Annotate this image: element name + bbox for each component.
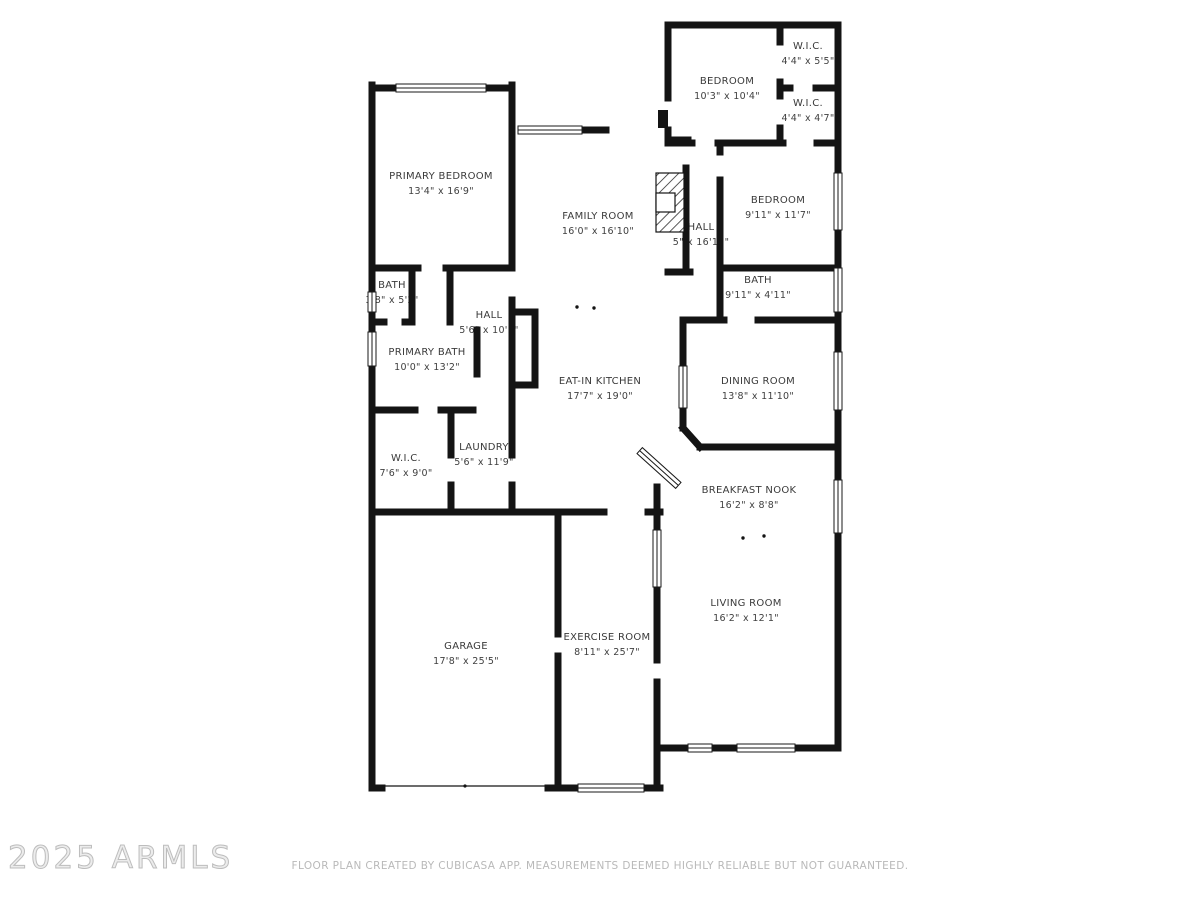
room-dims: 13'8" x 11'10" [721,390,795,404]
room-label-hall-right: HALL 5" x 16'11" [673,221,730,249]
room-label-primary-bedroom: PRIMARY BEDROOM 13'4" x 16'9" [389,170,493,198]
armls-watermark: 2025 ARMLS [8,840,233,876]
room-name: GARAGE [433,640,499,655]
front-door-icon [658,110,668,128]
room-dims: 16'0" x 16'10" [562,225,634,239]
room-name: LAUNDRY [454,441,513,456]
room-dims: 8'11" x 25'7" [564,646,651,660]
room-label-living-room: LIVING ROOM 16'2" x 12'1" [710,597,781,625]
room-dims: 5'6" x 11'9" [454,456,513,470]
room-label-family-room: FAMILY ROOM 16'0" x 16'10" [562,210,634,238]
garage-door-icon [382,784,548,787]
room-label-bath-2: BATH 9'11" x 4'11" [725,274,791,302]
room-name: EAT-IN KITCHEN [559,375,641,390]
room-label-bedroom-2: BEDROOM 9'11" x 11'7" [745,194,811,222]
room-label-bedroom-1: BEDROOM 10'3" x 10'4" [694,75,760,103]
room-name: BATH [725,274,791,289]
room-label-breakfast-nook: BREAKFAST NOOK 16'2" x 8'8" [702,484,797,512]
room-name: BREAKFAST NOOK [702,484,797,499]
room-name: HALL [459,309,518,324]
room-label-primary-bath: PRIMARY BATH 10'0" x 13'2" [388,346,465,374]
room-name: EXERCISE ROOM [564,631,651,646]
room-label-eat-in-kitchen: EAT-IN KITCHEN 17'7" x 19'0" [559,375,641,403]
room-dims: 5'6" x 10'5" [459,324,518,338]
room-name: FAMILY ROOM [562,210,634,225]
room-name: BATH [365,279,418,294]
footer-disclaimer: FLOOR PLAN CREATED BY CUBICASA APP. MEAS… [292,860,909,872]
room-label-wic-1: W.I.C. 4'4" x 5'5" [781,40,834,68]
room-name: HALL [673,221,730,236]
room-label-wic-left: W.I.C. 7'6" x 9'0" [379,452,432,480]
room-label-dining-room: DINING ROOM 13'8" x 11'10" [721,375,795,403]
floor-plan-walls [0,0,1200,900]
wall-lines [372,25,838,788]
window-icon [637,448,681,489]
room-dims: 16'2" x 12'1" [710,612,781,626]
room-dims: 16'2" x 8'8" [702,499,797,513]
room-dims: 3'8" x 5'2" [365,294,418,308]
room-name: BEDROOM [745,194,811,209]
room-dims: 17'8" x 25'5" [433,655,499,669]
room-name: W.I.C. [781,40,834,55]
room-name: W.I.C. [379,452,432,467]
floor-plan: PRIMARY BEDROOM 13'4" x 16'9" FAMILY ROO… [0,0,1200,900]
room-dims: 9'11" x 4'11" [725,289,791,303]
room-dims: 13'4" x 16'9" [389,185,493,199]
room-dims: 10'0" x 13'2" [388,361,465,375]
room-label-exercise-room: EXERCISE ROOM 8'11" x 25'7" [564,631,651,659]
room-label-garage: GARAGE 17'8" x 25'5" [433,640,499,668]
room-label-hall-left: HALL 5'6" x 10'5" [459,309,518,337]
room-dims: 9'11" x 11'7" [745,209,811,223]
room-dims: 7'6" x 9'0" [379,467,432,481]
room-label-laundry: LAUNDRY 5'6" x 11'9" [454,441,513,469]
room-dims: 10'3" x 10'4" [694,90,760,104]
room-name: W.I.C. [781,97,834,112]
room-name: PRIMARY BATH [388,346,465,361]
room-dims: 5" x 16'11" [673,236,730,250]
room-label-wic-2: W.I.C. 4'4" x 4'7" [781,97,834,125]
room-dims: 4'4" x 4'7" [781,112,834,126]
room-name: PRIMARY BEDROOM [389,170,493,185]
room-dims: 4'4" x 5'5" [781,55,834,69]
room-name: DINING ROOM [721,375,795,390]
room-dims: 17'7" x 19'0" [559,390,641,404]
room-name: LIVING ROOM [710,597,781,612]
room-name: BEDROOM [694,75,760,90]
room-label-bath-small: BATH 3'8" x 5'2" [365,279,418,307]
